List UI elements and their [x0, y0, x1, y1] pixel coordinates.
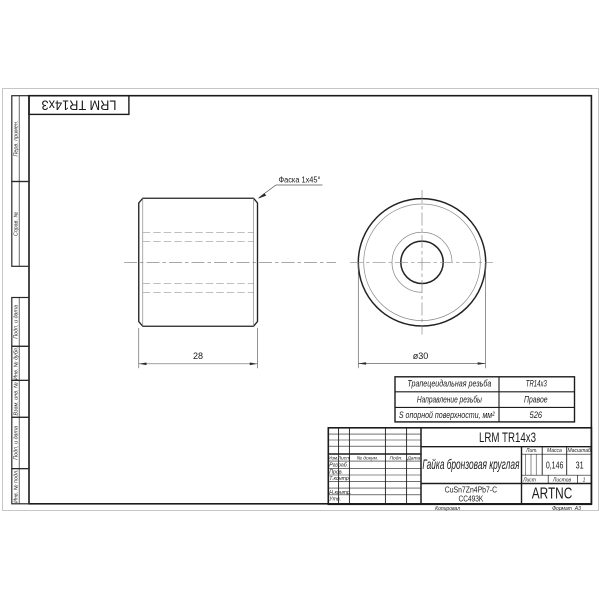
- svg-text:Фаска 1х45°: Фаска 1х45°: [279, 175, 321, 184]
- svg-text:Инв. № подл.: Инв. № подл.: [13, 469, 19, 502]
- svg-text:S опорной поверхности, мм²: S опорной поверхности, мм²: [399, 410, 495, 420]
- svg-text:Гайка бронзовая круглая: Гайка бронзовая круглая: [422, 456, 519, 472]
- svg-text:№ докум.: № докум.: [357, 455, 379, 461]
- svg-text:Перв. примен.: Перв. примен.: [13, 121, 19, 157]
- svg-text:Разраб.: Разраб.: [329, 463, 348, 469]
- svg-text:ø30: ø30: [413, 351, 429, 361]
- svg-text:LRM TR14x3: LRM TR14x3: [41, 98, 116, 114]
- svg-text:LRM TR14x3: LRM TR14x3: [479, 430, 536, 445]
- svg-text:Лит.: Лит.: [525, 448, 538, 454]
- svg-text:526: 526: [530, 410, 543, 420]
- svg-text:TR14х3: TR14х3: [526, 379, 548, 389]
- svg-text:Подп. и дата: Подп. и дата: [13, 305, 19, 339]
- svg-text:Лист: Лист: [337, 455, 351, 461]
- svg-text:Т.контр.: Т.контр.: [329, 476, 350, 482]
- svg-text:Лист: Лист: [522, 478, 536, 484]
- svg-text:28: 28: [193, 351, 203, 361]
- svg-text:Копировал: Копировал: [435, 506, 460, 512]
- svg-text:1: 1: [583, 478, 586, 484]
- svg-text:Масштаб: Масштаб: [568, 448, 592, 454]
- svg-text:0,146: 0,146: [546, 461, 564, 472]
- svg-text:Подп. и дата: Подп. и дата: [13, 426, 19, 460]
- svg-text:ARTNC: ARTNC: [532, 486, 573, 503]
- svg-text:Инв. № дубл.: Инв. № дубл.: [13, 347, 19, 380]
- svg-text:Пров.: Пров.: [329, 470, 343, 476]
- svg-text:Дата: Дата: [406, 455, 420, 461]
- svg-text:Трапецеидальная резьба: Трапецеидальная резьба: [407, 379, 491, 389]
- svg-text:Подп.: Подп.: [389, 455, 402, 461]
- svg-text:31: 31: [576, 461, 584, 472]
- svg-text:Масса: Масса: [547, 448, 562, 454]
- svg-text:CC493K: CC493K: [459, 493, 484, 503]
- svg-text:Справ. №: Справ. №: [13, 211, 19, 236]
- svg-text:Взам. инв. №: Взам. инв. №: [13, 382, 19, 416]
- svg-text:Утв.: Утв.: [329, 497, 341, 503]
- svg-text:Направление резьбы: Направление резьбы: [417, 394, 482, 404]
- svg-text:Н.контр.: Н.контр.: [329, 490, 351, 496]
- svg-text:А3: А3: [574, 506, 581, 512]
- svg-text:Формат: Формат: [552, 506, 572, 512]
- svg-text:Листов: Листов: [552, 478, 572, 484]
- svg-text:Правое: Правое: [524, 394, 548, 404]
